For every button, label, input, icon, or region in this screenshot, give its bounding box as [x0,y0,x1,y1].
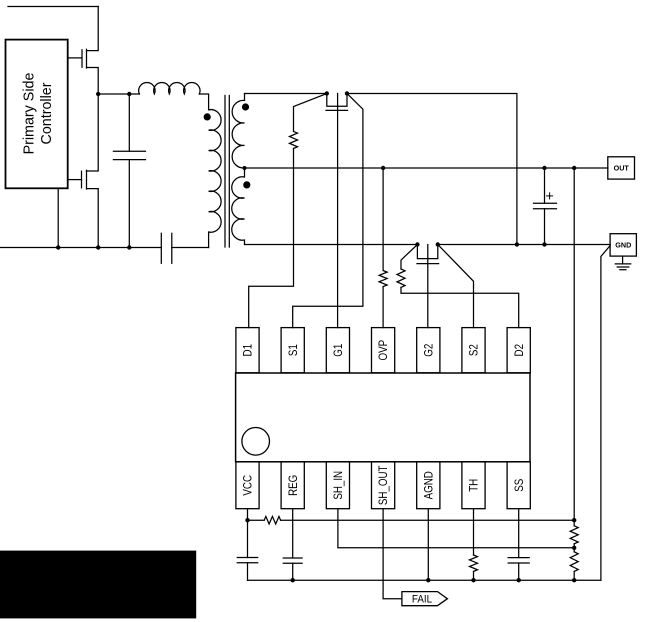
svg-text:G1: G1 [332,344,345,357]
svg-text:OVP: OVP [378,340,391,361]
svg-text:VCC: VCC [242,475,255,496]
svg-text:AGND: AGND [423,471,436,499]
svg-text:GND: GND [615,240,631,249]
svg-text:D1: D1 [242,344,255,357]
svg-text:REG: REG [287,475,300,496]
svg-text:TH: TH [468,479,481,492]
svg-text:OUT: OUT [614,163,630,172]
svg-text:SH_IN: SH_IN [332,471,345,500]
svg-text:Primary Side: Primary Side [21,73,37,155]
svg-text:S1: S1 [287,344,300,356]
svg-text:SH_OUT: SH_OUT [378,465,391,505]
svg-text:S2: S2 [468,344,481,356]
svg-text:SS: SS [513,479,526,492]
svg-text:FAIL: FAIL [412,594,432,606]
svg-text:G2: G2 [423,344,436,357]
svg-text:D2: D2 [513,344,526,357]
svg-text:Controller: Controller [39,82,55,144]
